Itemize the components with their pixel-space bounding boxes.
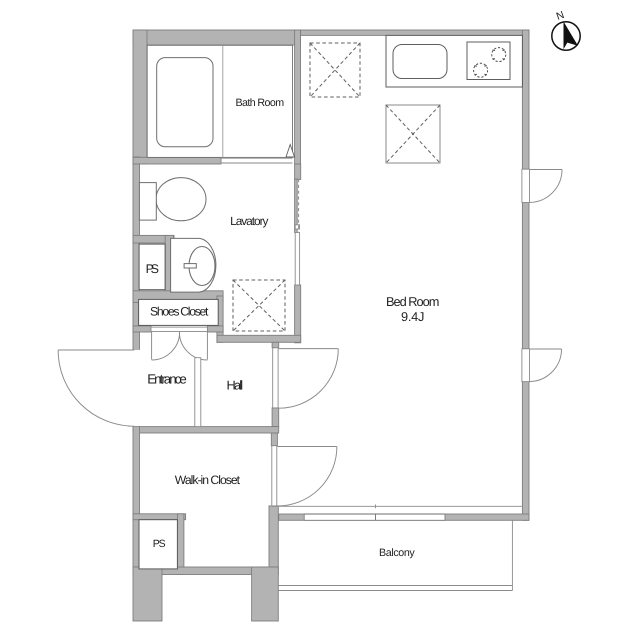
svg-text:Lavatory: Lavatory bbox=[230, 214, 268, 228]
svg-text:Bed Room: Bed Room bbox=[386, 294, 439, 309]
svg-text:Entrance: Entrance bbox=[147, 372, 187, 387]
svg-text:9.4J: 9.4J bbox=[401, 309, 424, 324]
svg-text:Bath Room: Bath Room bbox=[235, 97, 284, 109]
svg-text:PS: PS bbox=[153, 538, 166, 550]
svg-text:Hall: Hall bbox=[227, 377, 244, 392]
svg-text:Walk-in Closet: Walk-in Closet bbox=[175, 473, 241, 487]
svg-text:Shoes Closet: Shoes Closet bbox=[150, 305, 209, 319]
svg-text:PS: PS bbox=[146, 262, 159, 276]
svg-text:Balcony: Balcony bbox=[379, 547, 415, 559]
